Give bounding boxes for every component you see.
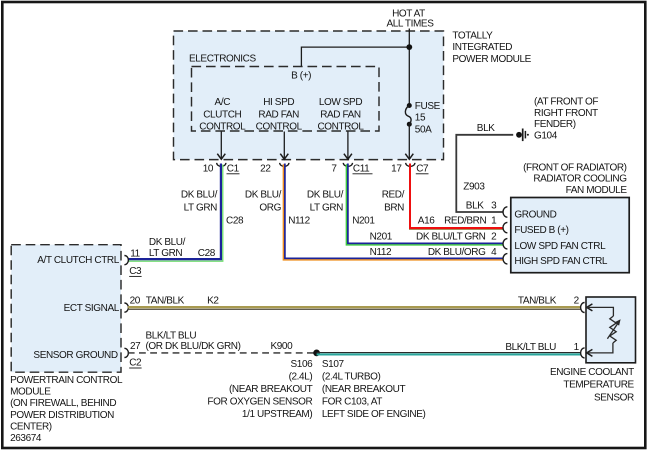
svg-text:(NEAR BREAKOUT: (NEAR BREAKOUT	[229, 384, 313, 395]
svg-text:LT GRN: LT GRN	[184, 202, 218, 213]
svg-text:S107: S107	[322, 359, 345, 370]
svg-text:MODULE: MODULE	[10, 387, 51, 398]
svg-text:1: 1	[574, 342, 580, 353]
svg-text:C3: C3	[129, 266, 142, 277]
svg-text:C28: C28	[198, 248, 216, 259]
svg-text:TAN/BLK: TAN/BLK	[518, 295, 557, 306]
svg-text:LT GRN: LT GRN	[149, 248, 183, 259]
svg-text:17: 17	[391, 164, 402, 175]
svg-text:263674: 263674	[10, 433, 42, 444]
svg-text:(2.4L TURBO): (2.4L TURBO)	[322, 371, 381, 382]
svg-text:FUSE: FUSE	[415, 101, 441, 112]
svg-text:C2: C2	[129, 358, 142, 369]
svg-text:HI SPD: HI SPD	[263, 97, 294, 108]
svg-text:(FRONT OF RADIATOR): (FRONT OF RADIATOR)	[523, 163, 627, 174]
svg-text:CENTER): CENTER)	[10, 421, 52, 432]
svg-text:S106: S106	[291, 359, 314, 370]
svg-text:K900: K900	[271, 341, 294, 352]
svg-text:4: 4	[491, 247, 497, 258]
svg-text:POWERTRAIN CONTROL: POWERTRAIN CONTROL	[10, 375, 123, 386]
svg-text:CLUTCH: CLUTCH	[203, 109, 241, 120]
svg-text:RED/BRN: RED/BRN	[444, 216, 486, 227]
svg-text:SENSOR: SENSOR	[594, 393, 634, 404]
svg-text:GROUND: GROUND	[514, 210, 556, 221]
svg-text:RADIATOR COOLING: RADIATOR COOLING	[533, 174, 627, 185]
svg-text:27: 27	[130, 341, 141, 352]
svg-text:INTEGRATED: INTEGRATED	[452, 42, 512, 53]
svg-text:CONTROL: CONTROL	[256, 122, 303, 133]
svg-text:3: 3	[491, 201, 497, 212]
svg-text:(ON FIREWALL, BEHIND: (ON FIREWALL, BEHIND	[10, 398, 116, 409]
svg-text:LOW SPD FAN CTRL: LOW SPD FAN CTRL	[514, 241, 606, 252]
svg-text:22: 22	[260, 164, 271, 175]
svg-text:(2.4L): (2.4L)	[289, 371, 313, 382]
svg-text:10: 10	[203, 164, 214, 175]
svg-text:11: 11	[130, 249, 140, 260]
svg-text:FOR OXYGEN SENSOR: FOR OXYGEN SENSOR	[207, 397, 312, 408]
svg-text:DK BLU/: DK BLU/	[181, 190, 218, 201]
svg-text:SENSOR GROUND: SENSOR GROUND	[33, 350, 117, 361]
svg-text:C7: C7	[416, 164, 429, 175]
svg-text:HIGH SPD FAN CTRL: HIGH SPD FAN CTRL	[514, 256, 607, 267]
svg-text:A16: A16	[418, 216, 435, 227]
svg-text:C11: C11	[353, 164, 370, 175]
svg-text:ECT SIGNAL: ECT SIGNAL	[64, 303, 120, 314]
svg-text:Z903: Z903	[463, 182, 485, 193]
svg-text:DK BLU/: DK BLU/	[307, 190, 344, 201]
svg-text:DK BLU/LT GRN: DK BLU/LT GRN	[416, 231, 486, 242]
svg-text:B (+): B (+)	[291, 71, 311, 82]
svg-text:BRN: BRN	[384, 202, 404, 213]
svg-text:K2: K2	[207, 295, 219, 306]
svg-text:50A: 50A	[415, 124, 432, 135]
svg-text:TOTALLY: TOTALLY	[452, 31, 493, 42]
svg-text:N112: N112	[370, 247, 392, 258]
svg-text:LEFT SIDE OF ENGINE): LEFT SIDE OF ENGINE)	[322, 409, 426, 420]
svg-text:FOR C103, AT: FOR C103, AT	[322, 397, 382, 408]
svg-text:BLK: BLK	[466, 201, 484, 212]
svg-text:BLK/LT BLU: BLK/LT BLU	[505, 342, 556, 353]
svg-text:(AT FRONT OF: (AT FRONT OF	[534, 97, 598, 108]
svg-text:LOW SPD: LOW SPD	[319, 97, 362, 108]
svg-text:DK BLU/: DK BLU/	[245, 190, 282, 201]
svg-text:ENGINE COOLANT: ENGINE COOLANT	[550, 367, 634, 378]
svg-text:N112: N112	[288, 215, 310, 226]
svg-text:RIGHT FRONT: RIGHT FRONT	[534, 108, 598, 119]
svg-text:2: 2	[574, 295, 580, 306]
svg-text:G104: G104	[534, 130, 558, 141]
svg-text:(OR DK BLU/DK GRN): (OR DK BLU/DK GRN)	[146, 341, 241, 352]
svg-text:N201: N201	[352, 215, 375, 226]
svg-text:BLK: BLK	[477, 123, 495, 134]
svg-text:CONTROL: CONTROL	[317, 122, 364, 133]
svg-text:C1: C1	[227, 164, 240, 175]
svg-text:FENDER): FENDER)	[534, 119, 576, 130]
svg-text:ALL TIMES: ALL TIMES	[387, 18, 435, 29]
svg-text:TEMPERATURE: TEMPERATURE	[563, 380, 634, 391]
svg-text:ORG: ORG	[259, 202, 281, 213]
svg-text:A/C: A/C	[215, 97, 231, 108]
svg-text:RAD FAN: RAD FAN	[320, 109, 361, 120]
svg-text:LT GRN: LT GRN	[310, 202, 344, 213]
svg-text:1/1 UPSTREAM): 1/1 UPSTREAM)	[242, 409, 312, 420]
svg-text:TAN/BLK: TAN/BLK	[146, 295, 185, 306]
svg-text:C28: C28	[226, 215, 244, 226]
svg-text:CONTROL: CONTROL	[199, 122, 246, 133]
svg-text:N201: N201	[370, 232, 393, 243]
svg-text:20: 20	[130, 295, 141, 306]
svg-text:FAN MODULE: FAN MODULE	[566, 185, 628, 196]
svg-text:FUSED B (+): FUSED B (+)	[514, 225, 568, 236]
svg-text:(NEAR BREAKOUT: (NEAR BREAKOUT	[322, 384, 406, 395]
svg-text:15: 15	[415, 113, 426, 124]
svg-text:A/T CLUTCH CTRL: A/T CLUTCH CTRL	[37, 255, 119, 266]
svg-text:2: 2	[491, 231, 497, 242]
svg-text:DK BLU/: DK BLU/	[149, 237, 186, 248]
svg-text:POWER DISTRIBUTION: POWER DISTRIBUTION	[10, 410, 114, 421]
svg-text:POWER MODULE: POWER MODULE	[452, 54, 531, 65]
svg-text:DK BLU/ORG: DK BLU/ORG	[428, 247, 486, 258]
svg-text:7: 7	[331, 164, 337, 175]
svg-text:RED/: RED/	[382, 190, 405, 201]
svg-text:RAD FAN: RAD FAN	[258, 109, 299, 120]
svg-text:1: 1	[491, 216, 497, 227]
svg-text:ELECTRONICS: ELECTRONICS	[189, 54, 256, 65]
